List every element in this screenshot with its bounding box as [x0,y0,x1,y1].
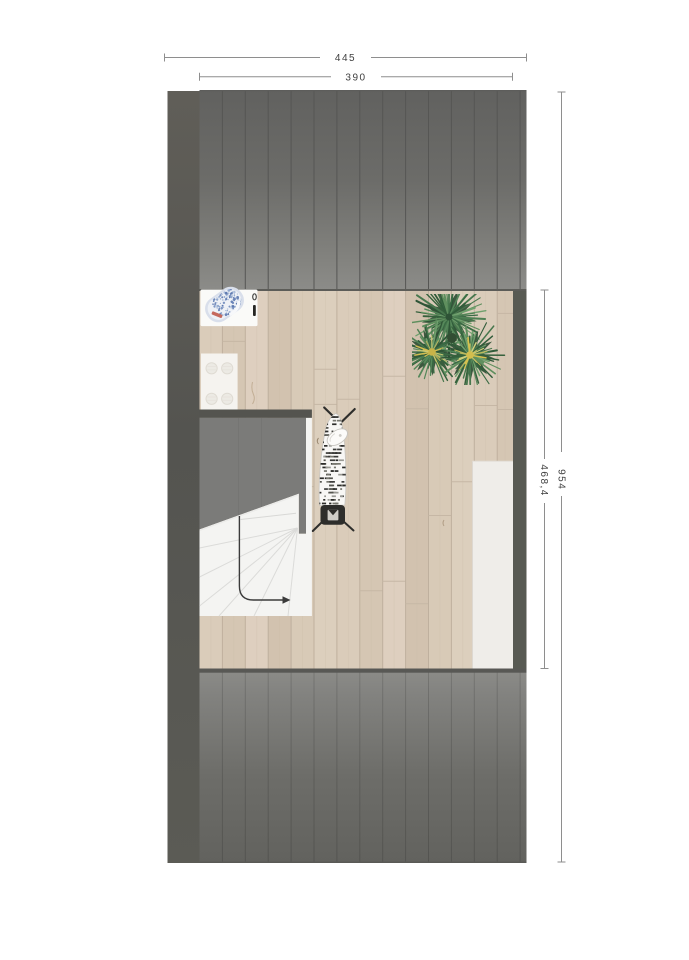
svg-text:954: 954 [555,469,566,490]
svg-text:390: 390 [345,72,366,83]
svg-text:445: 445 [335,53,356,64]
svg-text:468,4: 468,4 [538,464,549,497]
